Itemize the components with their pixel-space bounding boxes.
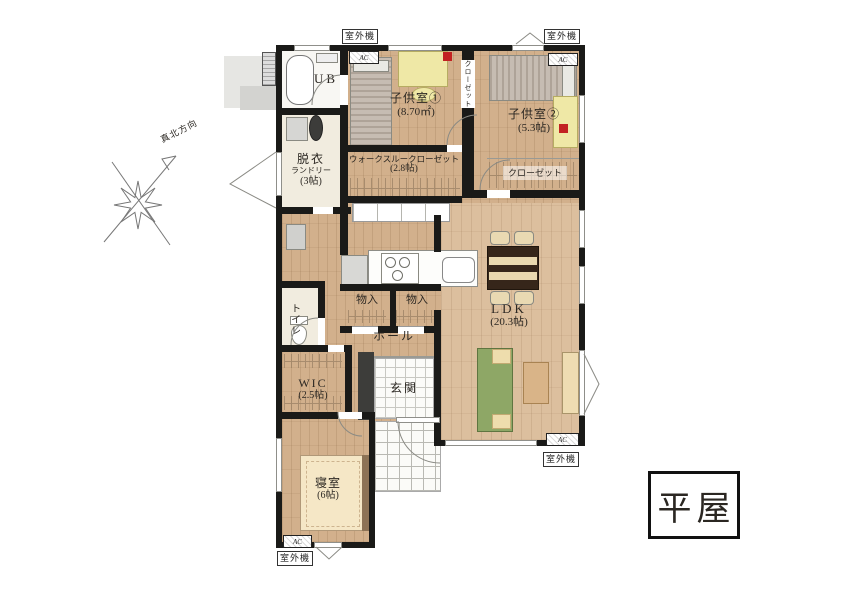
hall-label: ホール — [362, 329, 426, 345]
window — [388, 45, 442, 51]
entrance-label: 玄関 — [379, 381, 429, 397]
storage-a-label: 物入 — [346, 293, 388, 307]
storage-b-hanger — [396, 310, 438, 323]
laundry-exit-marker — [230, 152, 276, 208]
kids2-label: 子供室② (5.3帖) — [496, 107, 572, 135]
ldk-name: LDK — [491, 302, 527, 317]
refrigerator — [341, 255, 368, 285]
kids1-accent — [443, 52, 452, 61]
window — [276, 438, 282, 492]
kids2-closet-label: クローゼット — [503, 166, 567, 180]
sliding-door — [579, 350, 585, 416]
window — [294, 45, 330, 51]
entrance-step-line — [374, 356, 434, 358]
wic-hanger-top — [284, 354, 342, 368]
wic-name: WIC — [298, 377, 327, 390]
ldk-size: (20.3帖) — [490, 316, 528, 328]
wall — [282, 108, 346, 115]
laundry-label: 脱衣 ランドリー (3帖) — [283, 148, 339, 192]
door-opening — [447, 145, 462, 152]
bath-counter — [316, 53, 338, 63]
low-table — [523, 362, 549, 404]
bedroom-label: 寝室 (6帖) — [300, 475, 356, 503]
wall — [340, 196, 462, 203]
dining-chair — [490, 231, 510, 245]
floor-plan: AC AC AC AC 室外機 室外機 室外機 室外機 UB 子供室① (8.7… — [0, 0, 842, 595]
wall — [434, 215, 441, 252]
ac-label: AC — [360, 54, 369, 62]
wtc-size: (2.8帖) — [390, 164, 418, 175]
kitchen-sink — [442, 257, 475, 283]
ldk-label: LDK (20.3帖) — [472, 301, 546, 329]
window — [314, 542, 342, 548]
laundry-size: (3帖) — [300, 176, 322, 187]
compass-icon — [104, 156, 176, 245]
porch-floor — [374, 421, 441, 492]
kids1-desk — [398, 51, 448, 87]
wall — [340, 214, 348, 255]
wall — [462, 190, 585, 198]
stove-burner — [399, 257, 410, 268]
water-heater-unit — [262, 52, 276, 86]
outdoor-unit-badge: 室外機 — [543, 452, 579, 467]
walkthrough-closet-label: ウォークスルークローゼット (2.8帖) — [346, 152, 462, 178]
laundry-basket — [309, 115, 323, 141]
shoe-cabinet — [358, 352, 374, 420]
table-runner — [489, 272, 537, 280]
page-title: 平屋 — [658, 481, 736, 530]
ac-unit: AC — [548, 53, 578, 66]
stove-burner — [392, 270, 403, 281]
wall — [345, 345, 352, 419]
sofa-cushion — [492, 349, 511, 364]
ac-unit: AC — [546, 433, 579, 446]
window — [579, 95, 585, 143]
table-runner — [489, 257, 537, 265]
tv-board — [562, 352, 579, 414]
wtc-name: ウォークスルークローゼット — [349, 155, 459, 165]
window — [579, 266, 585, 304]
kids1-name: 子供室① — [390, 92, 442, 105]
ac-label: AC — [558, 436, 567, 444]
storage-b-label: 物入 — [394, 293, 440, 307]
laundry-name2: ランドリー — [291, 167, 331, 176]
kids2-name: 子供室② — [508, 108, 560, 121]
kids1-closet-slot: クローゼット — [461, 60, 475, 108]
dining-table — [487, 246, 539, 290]
outdoor-unit-badge: 室外機 — [342, 29, 378, 44]
kids1-closet-label: クローゼット — [463, 60, 473, 108]
north-direction-label: 真北方向 — [158, 116, 200, 146]
wall — [346, 145, 462, 152]
toilet-label: トイレ — [286, 292, 302, 346]
wic-label: WIC (2.5帖) — [282, 375, 344, 403]
ac-label: AC — [293, 538, 302, 546]
door-opening — [318, 318, 325, 345]
entry-door — [396, 417, 440, 423]
ac-unit: AC — [283, 535, 312, 548]
bedroom-size: (6帖) — [317, 490, 339, 501]
stove-burner — [385, 257, 396, 268]
wall — [340, 284, 441, 291]
ub-label: UB — [310, 71, 342, 87]
sofa-cushion — [492, 414, 511, 429]
door-opening — [313, 207, 333, 214]
laundry-exterior-door — [276, 152, 282, 196]
ldk-opening-marker — [584, 354, 599, 414]
door-opening — [328, 345, 344, 352]
washing-machine — [286, 117, 308, 141]
storage-a-hanger — [348, 310, 386, 323]
door-opening — [487, 190, 510, 198]
concrete-pad — [240, 86, 276, 110]
outdoor-unit-badge: 室外機 — [544, 29, 580, 44]
laundry-name: 脱衣 — [297, 153, 325, 166]
ac-label: AC — [559, 56, 568, 64]
closet-line — [487, 158, 579, 159]
kids1-size: (8.70㎡) — [397, 106, 435, 118]
bedroom-exit-marker — [316, 547, 342, 559]
wic-size: (2.5帖) — [298, 390, 327, 401]
door-opening — [338, 412, 362, 419]
walkthrough-closet-hanger — [350, 178, 460, 198]
wall — [434, 352, 441, 444]
ac-unit: AC — [349, 51, 379, 64]
bedroom-name: 寝室 — [315, 477, 341, 490]
kids2-size: (5.3帖) — [518, 122, 550, 134]
vanity-cabinet — [286, 224, 306, 250]
outdoor-unit-badge: 室外機 — [277, 551, 313, 566]
wall — [369, 412, 375, 548]
dining-chair — [514, 231, 534, 245]
title-box: 平屋 — [648, 471, 740, 539]
window — [512, 45, 544, 51]
kids1-label: 子供室① (8.70㎡) — [378, 91, 454, 119]
kids2-window-marker — [516, 33, 544, 44]
window — [579, 210, 585, 248]
window — [445, 440, 537, 446]
